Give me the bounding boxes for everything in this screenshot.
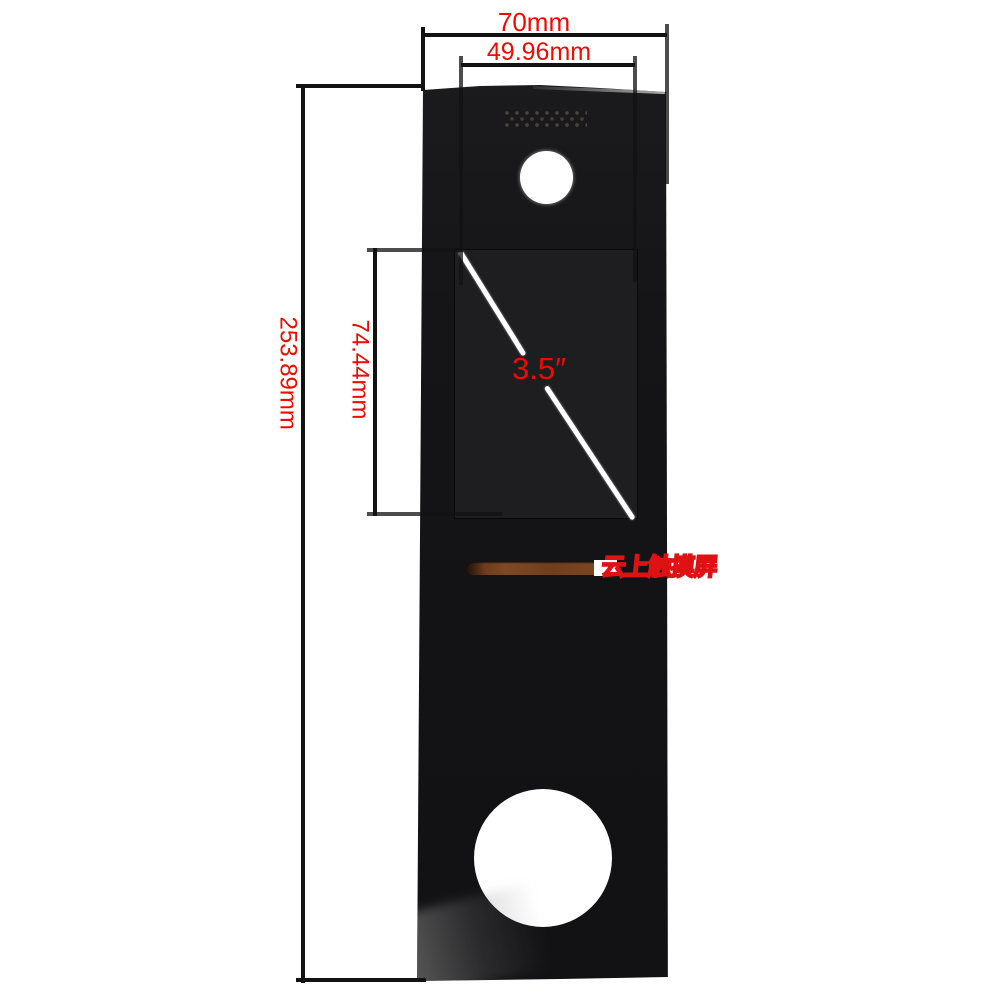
overall-height-label: 253.89mm	[277, 317, 302, 427]
speaker-grille-dots	[505, 111, 587, 127]
dim-line-overall-height	[301, 84, 305, 983]
screen-height-label: 74.44mm	[349, 320, 374, 414]
dim-tick-overall-height-bottom	[296, 978, 426, 982]
panel-top-edge-highlight	[533, 86, 665, 94]
dim-tick-overall-height-top	[296, 84, 425, 88]
dim-tick-screen-height-bottom	[367, 512, 502, 516]
screen-diagonal-label: 3.5″	[512, 351, 566, 387]
dim-line-screen-height	[373, 248, 377, 516]
camera-hole	[520, 151, 573, 204]
watermark-text: 云上触摸屏	[600, 547, 719, 582]
outer-width-label: 70mm	[412, 7, 656, 38]
dim-tick-screen-height-top	[367, 248, 463, 252]
dim-tick-outer-width-right	[665, 24, 669, 184]
glass-panel-front	[417, 84, 669, 982]
product-photo: 3.5″ 70mm 49.96mm 253.89mm 74.44mm 云上触摸屏	[0, 0, 1000, 1000]
dim-tick-inner-width-right	[633, 56, 637, 282]
inner-width-label: 49.96mm	[452, 38, 626, 67]
flex-cable-slot	[466, 562, 595, 575]
